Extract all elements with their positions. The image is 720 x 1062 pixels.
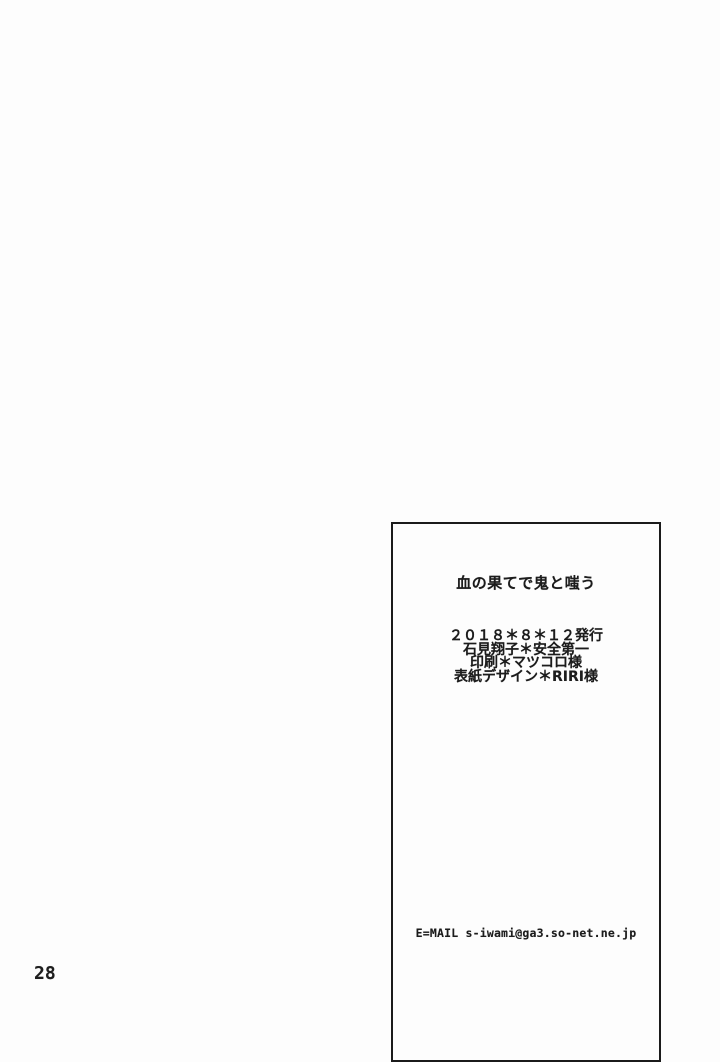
book-title: 血の果てで鬼と嗤う <box>393 572 659 593</box>
cover-designer-line: 表紙デザイン＊RIRI様 <box>393 671 659 685</box>
credits-block: ２０１８＊８＊１２発行 石見翔子＊安全第一 印刷＊マツコロ様 表紙デザイン＊RI… <box>393 630 659 684</box>
contact-email: E=MAIL s-iwami@ga3.so-net.ne.jp <box>393 926 659 940</box>
scanned-page: 血の果てで鬼と嗤う ２０１８＊８＊１２発行 石見翔子＊安全第一 印刷＊マツコロ様… <box>0 0 720 1050</box>
page-number: 28 <box>34 963 56 984</box>
colophon-box: 血の果てで鬼と嗤う ２０１８＊８＊１２発行 石見翔子＊安全第一 印刷＊マツコロ様… <box>391 522 661 1062</box>
